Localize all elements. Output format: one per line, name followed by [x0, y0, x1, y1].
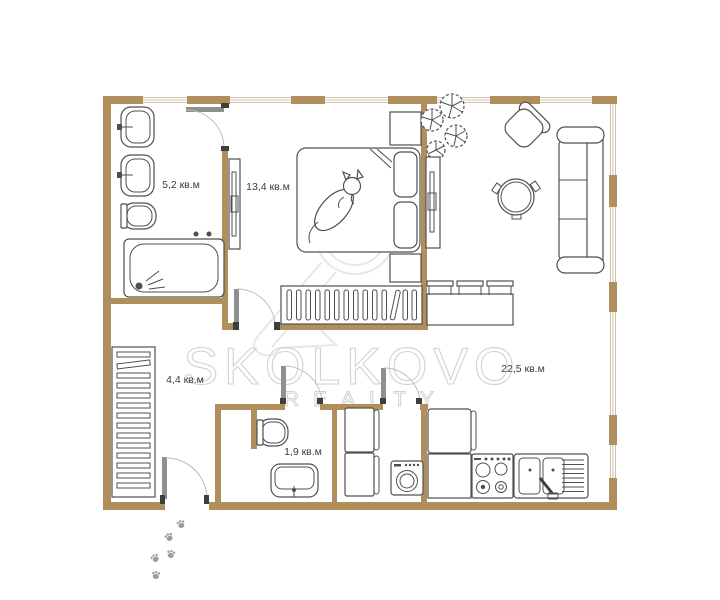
sink [271, 464, 318, 497]
area-label-bathroom: 5,2 кв.м [162, 179, 200, 191]
paw-icon [150, 553, 161, 564]
washing-machine [391, 461, 423, 495]
room-living-kitchen: 22,5 кв.м [421, 94, 604, 499]
area-label-wc: 1,9 кв.м [284, 446, 322, 458]
bar-counter [427, 294, 513, 325]
bar-stool [457, 281, 483, 295]
area-label-living: 22,5 кв.м [501, 363, 545, 375]
dining-table [492, 179, 541, 219]
floor-plan: SKOLKOVO REALTY [0, 0, 720, 600]
bed [297, 148, 420, 252]
kitchen-cabinet [428, 454, 471, 498]
bathroom-door [186, 103, 229, 151]
bedroom-door [233, 289, 280, 330]
stove [472, 454, 513, 498]
bar-stool [487, 281, 513, 295]
shoe-rack [112, 347, 155, 497]
kitchen-sink [514, 454, 588, 499]
toilet [257, 419, 288, 446]
tall-cabinet [345, 408, 379, 496]
area-label-bedroom: 13,4 кв.м [246, 181, 290, 193]
bar-stool [427, 281, 453, 295]
paw-icon [164, 532, 175, 543]
bathtub [124, 232, 224, 298]
paw-prints [150, 519, 186, 579]
paw-icon [176, 519, 186, 529]
toilet [121, 203, 156, 229]
sofa [557, 127, 604, 273]
paw-icon [152, 571, 161, 580]
room-bedroom: 13,4 кв.м [229, 112, 422, 324]
sink [117, 107, 154, 147]
area-label-hallway: 4,4 кв.м [166, 374, 204, 386]
nightstand [390, 112, 421, 145]
wardrobe-hangers [281, 286, 422, 324]
tv-unit [426, 157, 440, 248]
room-bathroom: 5,2 кв.м [117, 107, 224, 297]
nightstand [390, 254, 421, 282]
sink [117, 155, 154, 196]
room-closet [345, 408, 423, 496]
floor-plan-page: SKOLKOVO REALTY [0, 0, 720, 600]
room-wc: 1,9 кв.м [257, 419, 322, 497]
entrance-door [160, 457, 209, 504]
fridge [428, 409, 476, 453]
armchair [499, 100, 552, 153]
paw-icon [166, 549, 175, 558]
tv-unit [229, 159, 240, 249]
